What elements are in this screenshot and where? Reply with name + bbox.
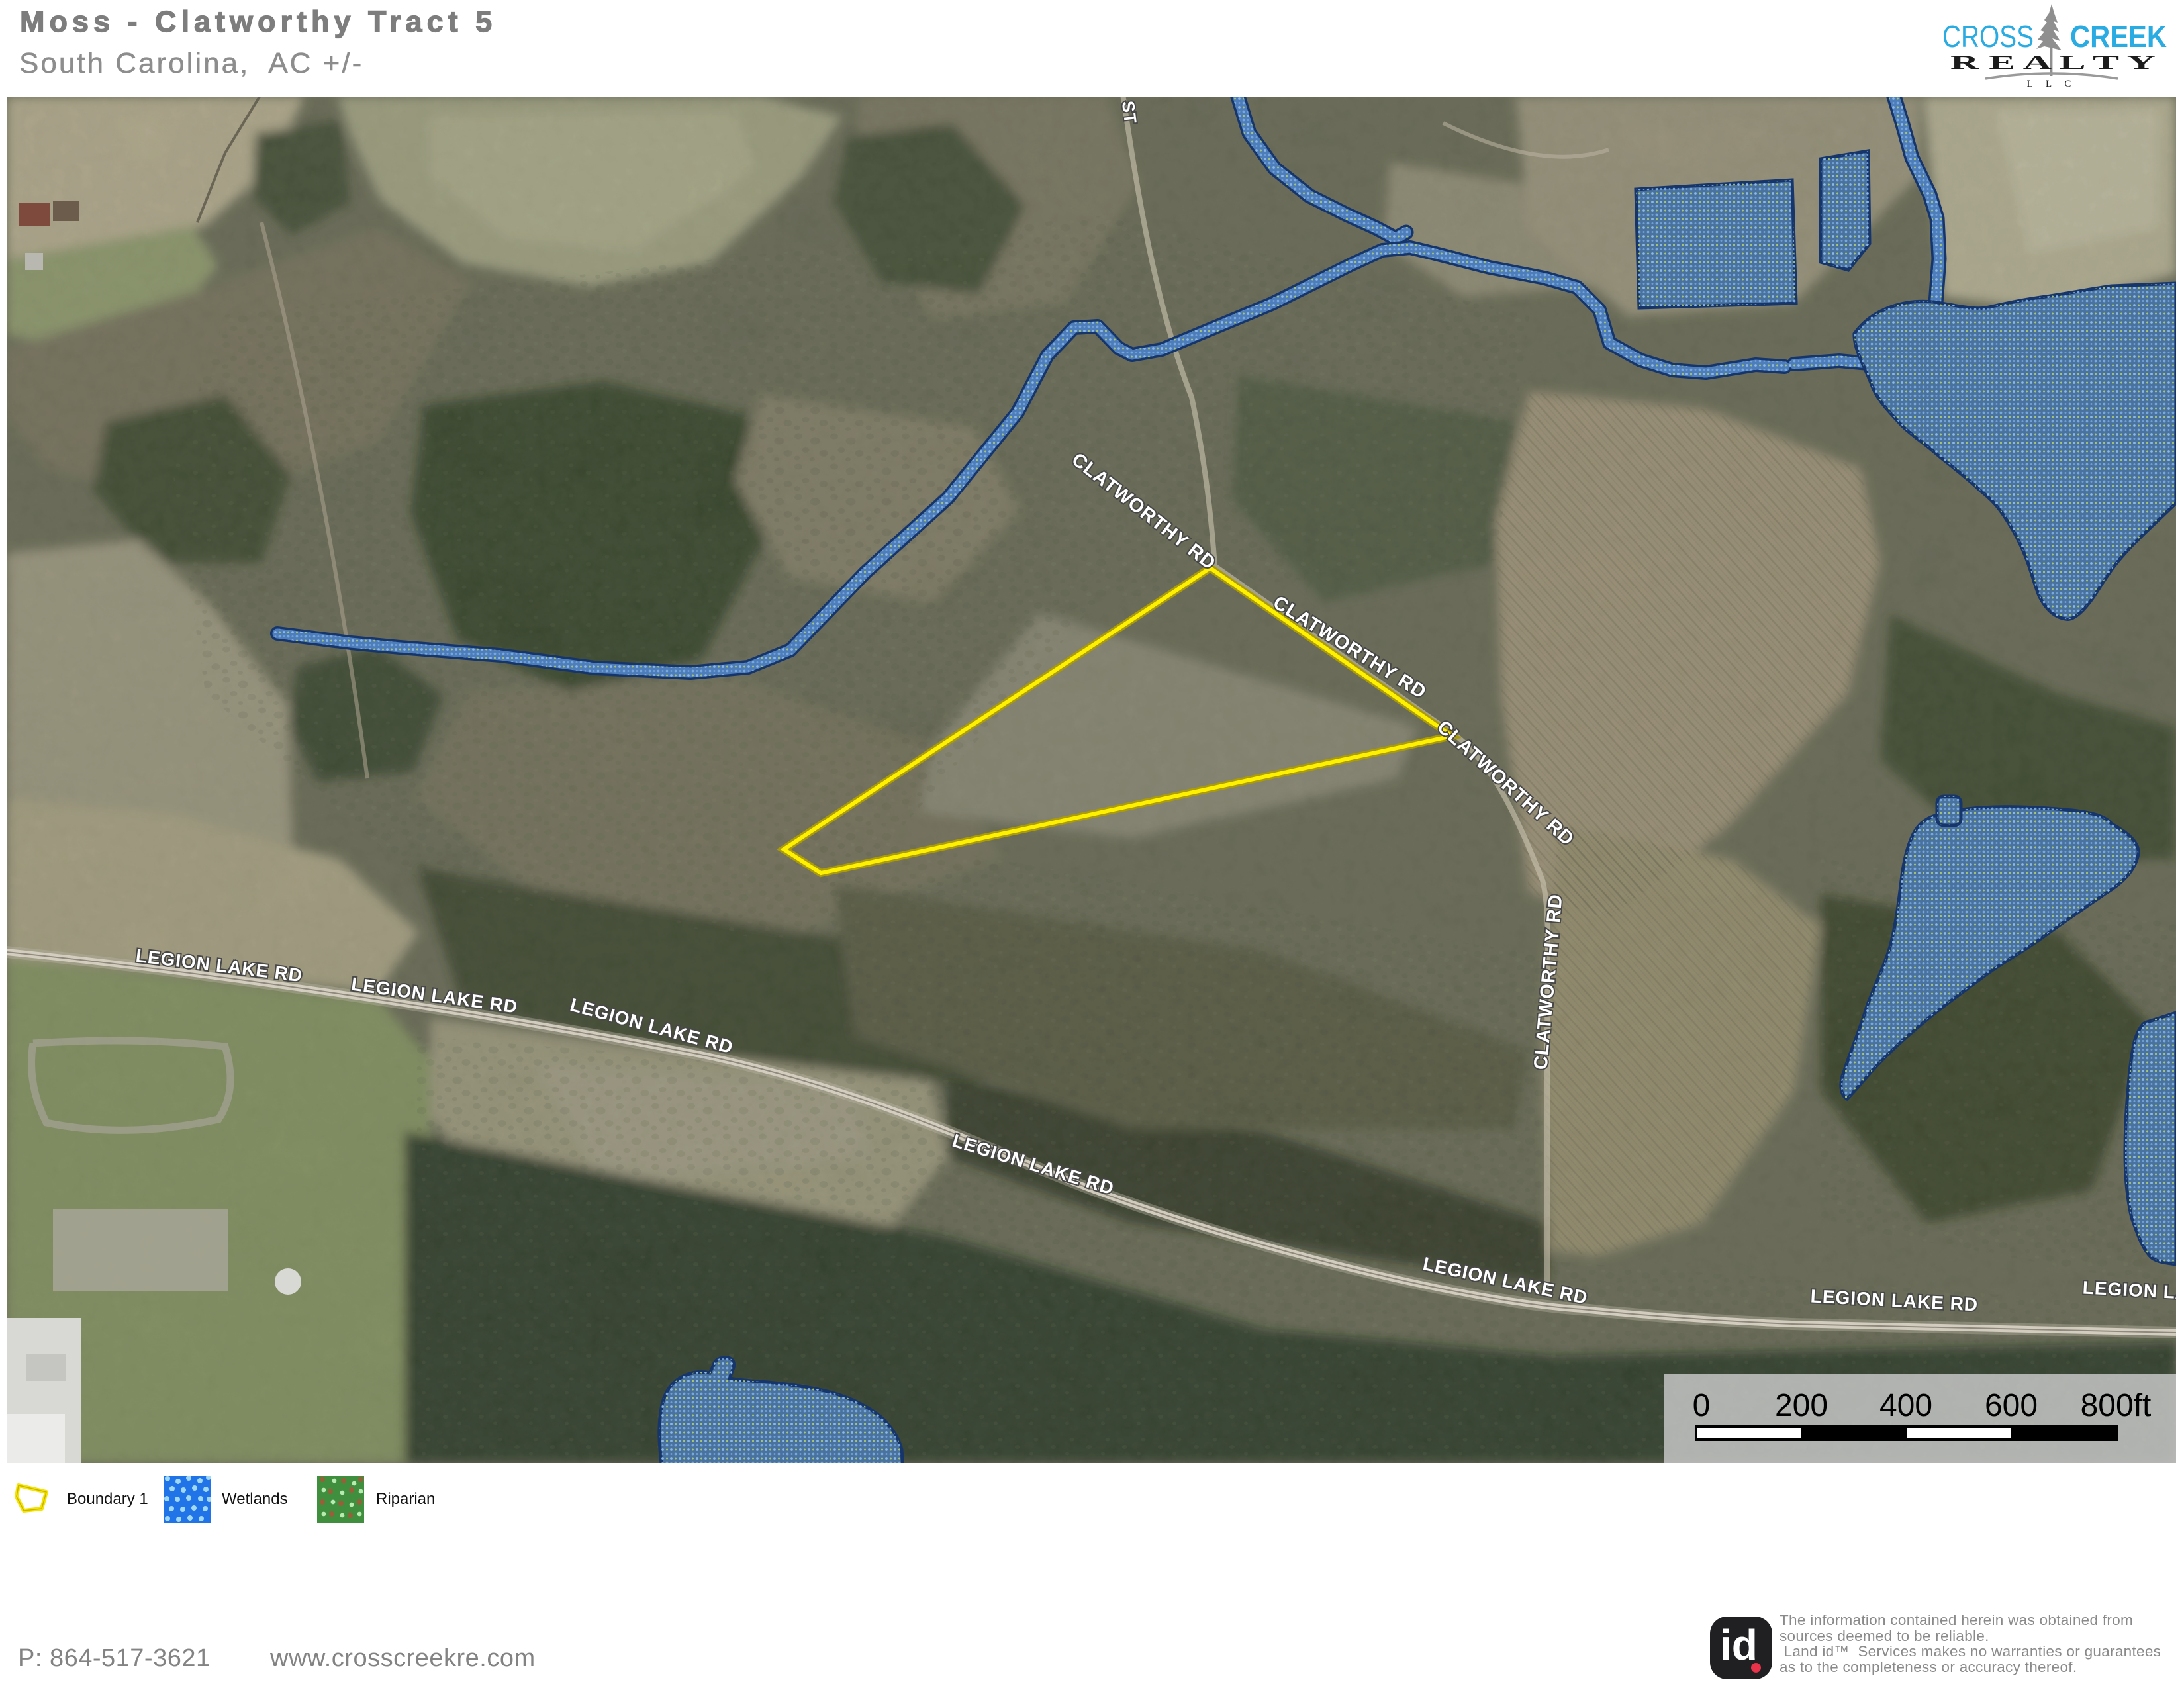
svg-text:800ft: 800ft xyxy=(2081,1388,2152,1423)
svg-text:CROSS: CROSS xyxy=(1942,19,2034,54)
svg-text:R E A L T Y: R E A L T Y xyxy=(1950,52,2156,73)
svg-text:400: 400 xyxy=(1879,1388,1932,1423)
svg-text:L L C: L L C xyxy=(2027,79,2077,89)
svg-text:200: 200 xyxy=(1775,1388,1828,1423)
svg-text:0: 0 xyxy=(1693,1388,1711,1423)
svg-text:CREEK: CREEK xyxy=(2070,19,2167,54)
svg-text:600: 600 xyxy=(1985,1388,2038,1423)
svg-text:ST: ST xyxy=(1118,100,1141,126)
